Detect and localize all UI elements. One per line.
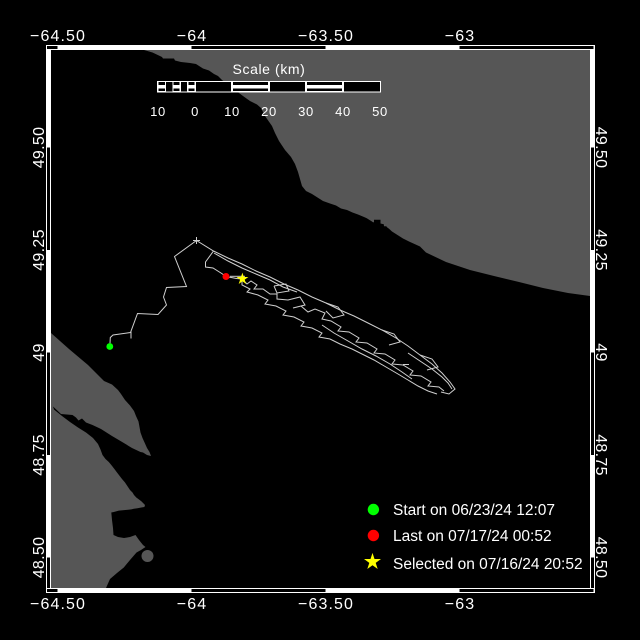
svg-text:−64.50: −64.50 (30, 596, 86, 613)
svg-text:48.50: 48.50 (592, 537, 609, 579)
svg-text:10: 10 (150, 104, 166, 119)
svg-text:−64: −64 (177, 28, 207, 45)
svg-text:−63: −63 (445, 28, 475, 45)
svg-text:48.75: 48.75 (592, 434, 609, 476)
svg-text:Selected on 07/16/24 20:52: Selected on 07/16/24 20:52 (393, 556, 583, 573)
svg-text:Last on 07/17/24 00:52: Last on 07/17/24 00:52 (393, 528, 552, 545)
svg-text:Start on 06/23/24 12:07: Start on 06/23/24 12:07 (393, 502, 555, 519)
svg-text:−64.50: −64.50 (30, 28, 86, 45)
svg-text:−64: −64 (177, 596, 207, 613)
svg-text:−63: −63 (445, 596, 475, 613)
svg-text:20: 20 (261, 104, 277, 119)
svg-text:30: 30 (298, 104, 314, 119)
svg-text:49.50: 49.50 (592, 127, 609, 169)
svg-text:−63.50: −63.50 (298, 28, 354, 45)
svg-text:49: 49 (592, 343, 609, 361)
svg-text:Scale (km): Scale (km) (233, 61, 306, 77)
svg-text:49: 49 (31, 343, 48, 361)
svg-text:49.25: 49.25 (592, 229, 609, 271)
svg-text:49.25: 49.25 (31, 229, 48, 271)
svg-text:10: 10 (224, 104, 240, 119)
svg-text:40: 40 (335, 104, 351, 119)
svg-text:−63.50: −63.50 (298, 596, 354, 613)
svg-text:49.50: 49.50 (31, 127, 48, 169)
svg-text:50: 50 (372, 104, 388, 119)
svg-text:48.50: 48.50 (31, 537, 48, 579)
svg-text:0: 0 (191, 104, 199, 119)
svg-text:48.75: 48.75 (31, 434, 48, 476)
